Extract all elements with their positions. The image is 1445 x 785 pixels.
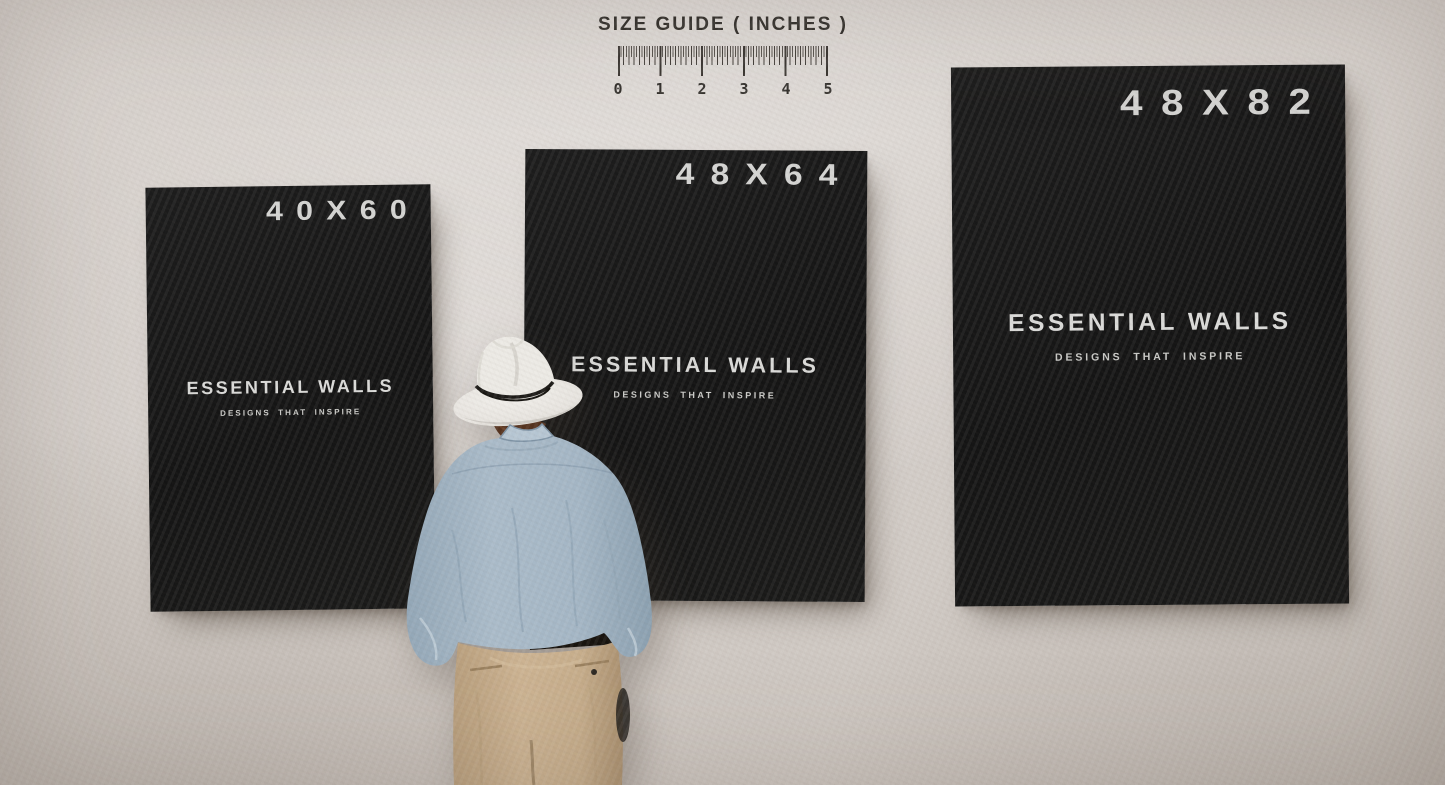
poster-48x82: 48X82 ESSENTIAL WALLS DESIGNS THAT INSPI… bbox=[951, 64, 1349, 606]
ruler-number: 0 bbox=[613, 80, 622, 98]
ruler-number: 3 bbox=[739, 80, 748, 98]
ruler-number: 1 bbox=[655, 80, 664, 98]
ruler-numbers: 0 1 2 3 4 5 bbox=[618, 80, 828, 98]
size-guide-title: SIZE GUIDE ( INCHES ) bbox=[560, 14, 886, 36]
size-guide-ruler: 0 1 2 3 4 5 bbox=[618, 46, 828, 98]
arm-gap-shadow bbox=[616, 688, 630, 742]
poster-brand-title: ESSENTIAL WALLS bbox=[953, 307, 1347, 338]
poster-brand-tagline: DESIGNS THAT INSPIRE bbox=[953, 349, 1347, 364]
ruler-number: 5 bbox=[823, 80, 832, 98]
poster-size-label: 48X82 bbox=[1120, 80, 1345, 124]
trousers bbox=[453, 641, 623, 785]
gallery-wall-scene: SIZE GUIDE ( INCHES ) 0 1 2 3 4 5 40X60 … bbox=[0, 0, 1445, 785]
poster-size-label: 48X64 bbox=[676, 158, 867, 193]
poster-size-label: 40X60 bbox=[265, 194, 431, 227]
ruler-number: 4 bbox=[781, 80, 790, 98]
poster-brand-block: ESSENTIAL WALLS DESIGNS THAT INSPIRE bbox=[953, 307, 1347, 364]
pocket-button bbox=[591, 669, 597, 675]
ruler-number: 2 bbox=[697, 80, 706, 98]
size-guide: SIZE GUIDE ( INCHES ) 0 1 2 3 4 5 bbox=[560, 14, 886, 98]
man-figure bbox=[390, 330, 690, 785]
ruler-ticks bbox=[618, 46, 828, 76]
fedora-hat bbox=[451, 337, 586, 433]
shirt bbox=[407, 424, 652, 666]
